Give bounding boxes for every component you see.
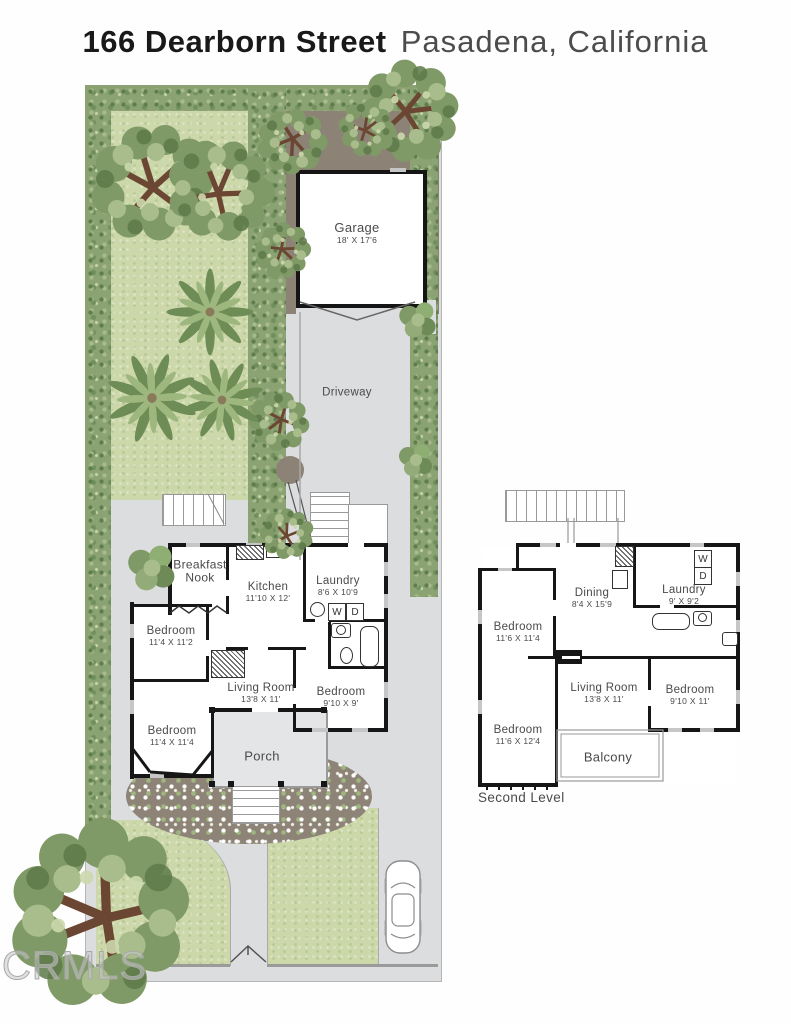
planter-corner xyxy=(130,540,172,604)
exterior-stairs-right xyxy=(310,492,350,546)
room-label-bedroom-4: Bedroom11'6 X 11'4 xyxy=(494,621,543,643)
room-label-living-room-2: Living Room13'8 X 11' xyxy=(570,682,637,704)
room-label-balcony: Balcony xyxy=(584,751,632,766)
address-text: 166 Dearborn Street xyxy=(83,24,387,59)
door-gap xyxy=(648,690,651,706)
room-label-kitchen: Kitchen11'10 X 12' xyxy=(246,581,291,603)
first-floor-wing xyxy=(132,660,215,777)
window-marker xyxy=(384,682,388,698)
backyard-lawn xyxy=(96,92,258,500)
window-marker xyxy=(312,728,328,732)
wall-segment xyxy=(130,774,214,778)
wall-segment xyxy=(328,666,388,669)
hedge-left xyxy=(85,85,111,847)
bathtub-icon xyxy=(360,626,379,667)
window-marker xyxy=(668,728,682,732)
cabinet-icon xyxy=(612,570,628,589)
room-label-laundry-2: Laundry9' X 9'2 xyxy=(662,584,706,606)
porch-column xyxy=(228,781,234,787)
porch-steps xyxy=(232,786,280,824)
stove-icon xyxy=(236,545,264,560)
window-marker xyxy=(736,572,740,586)
window-marker xyxy=(736,620,740,632)
washer-icon: W xyxy=(328,603,346,621)
wall-segment xyxy=(516,543,519,571)
window-marker xyxy=(736,690,740,704)
window-marker xyxy=(690,543,704,547)
wall-segment xyxy=(211,708,214,777)
front-fence xyxy=(267,964,438,967)
room-label-porch: Porch xyxy=(244,750,279,765)
window-marker xyxy=(186,543,200,547)
page-title: 166 Dearborn Street Pasadena, California xyxy=(0,24,791,60)
fireplace-icon xyxy=(211,650,245,678)
wall-segment xyxy=(130,679,209,682)
porch-column xyxy=(278,781,284,787)
room-label-living-room: Living Room13'8 X 11' xyxy=(227,682,294,704)
floor-plan-page: 166 Dearborn Street Pasadena, California… xyxy=(0,0,791,1024)
driveway-label: Driveway xyxy=(322,387,372,400)
window-marker xyxy=(540,543,556,547)
window-marker xyxy=(352,728,368,732)
door-gap xyxy=(206,640,209,656)
room-label-bedroom-6: Bedroom11'6 X 12'4 xyxy=(494,724,543,746)
city-text: Pasadena, California xyxy=(391,24,708,59)
window-marker xyxy=(130,624,134,638)
window-marker xyxy=(700,728,714,732)
wall-segment xyxy=(293,728,388,732)
hedge-right xyxy=(410,85,438,597)
stair-landing xyxy=(348,504,388,546)
window-marker xyxy=(498,568,512,571)
room-label-bedroom-5: Bedroom9'10 X 11' xyxy=(666,684,715,706)
porch-column xyxy=(209,781,215,787)
toilet-icon xyxy=(693,611,712,626)
exterior-stairs-left xyxy=(162,494,226,526)
room-label-breakfast-nook: Breakfast Nook xyxy=(167,559,233,586)
sink-icon xyxy=(266,546,284,558)
tree-well xyxy=(276,456,304,484)
door-gap xyxy=(562,656,580,659)
washer-icon: W xyxy=(694,550,712,568)
door-gap xyxy=(348,543,364,547)
room-label-laundry: Laundry8'6 X 10'9 xyxy=(316,575,360,597)
wall-segment xyxy=(130,604,212,607)
porch-column xyxy=(209,707,215,713)
wall-segment xyxy=(303,543,306,622)
second-level-stairs xyxy=(505,490,625,522)
door-gap xyxy=(252,708,278,712)
room-label-dining: Dining8'4 X 15'9 xyxy=(572,587,612,609)
room-label-bedroom-2: Bedroom9'10 X 9' xyxy=(317,686,366,708)
window-marker xyxy=(384,594,388,608)
window-marker xyxy=(384,562,388,576)
bathtub-icon xyxy=(652,613,690,630)
wall-segment xyxy=(648,728,740,732)
hedge-middle xyxy=(248,88,286,566)
toilet-icon xyxy=(331,623,351,638)
wall-segment xyxy=(478,568,482,787)
crmls-watermark: CRMLS xyxy=(2,944,147,989)
wall-segment xyxy=(478,783,558,787)
bathroom-sink-icon xyxy=(340,647,353,664)
dryer-icon: D xyxy=(346,603,364,621)
laundry-sink-icon xyxy=(310,602,325,617)
room-label-bedroom-1: Bedroom11'4 X 11'2 xyxy=(147,625,196,647)
door-gap xyxy=(315,619,329,622)
second-level-caption: Second Level xyxy=(478,790,565,805)
window-marker xyxy=(600,543,616,547)
room-label-garage: Garage 18' X 17'6 xyxy=(334,221,379,245)
car-icon xyxy=(383,858,423,958)
stove-icon xyxy=(615,546,634,567)
window-marker xyxy=(130,700,134,714)
sink-icon xyxy=(722,632,738,646)
window-marker xyxy=(390,168,406,172)
door-gap xyxy=(560,543,576,547)
window-marker xyxy=(478,610,482,624)
dryer-icon: D xyxy=(694,567,712,585)
window-marker xyxy=(478,700,482,714)
porch-column xyxy=(321,781,327,787)
door-gap xyxy=(248,647,268,650)
room-label-bedroom-3: Bedroom11'4 X 11'4 xyxy=(148,725,197,747)
wall-segment xyxy=(555,656,558,787)
window-marker xyxy=(150,774,164,778)
door-gap xyxy=(553,600,556,616)
